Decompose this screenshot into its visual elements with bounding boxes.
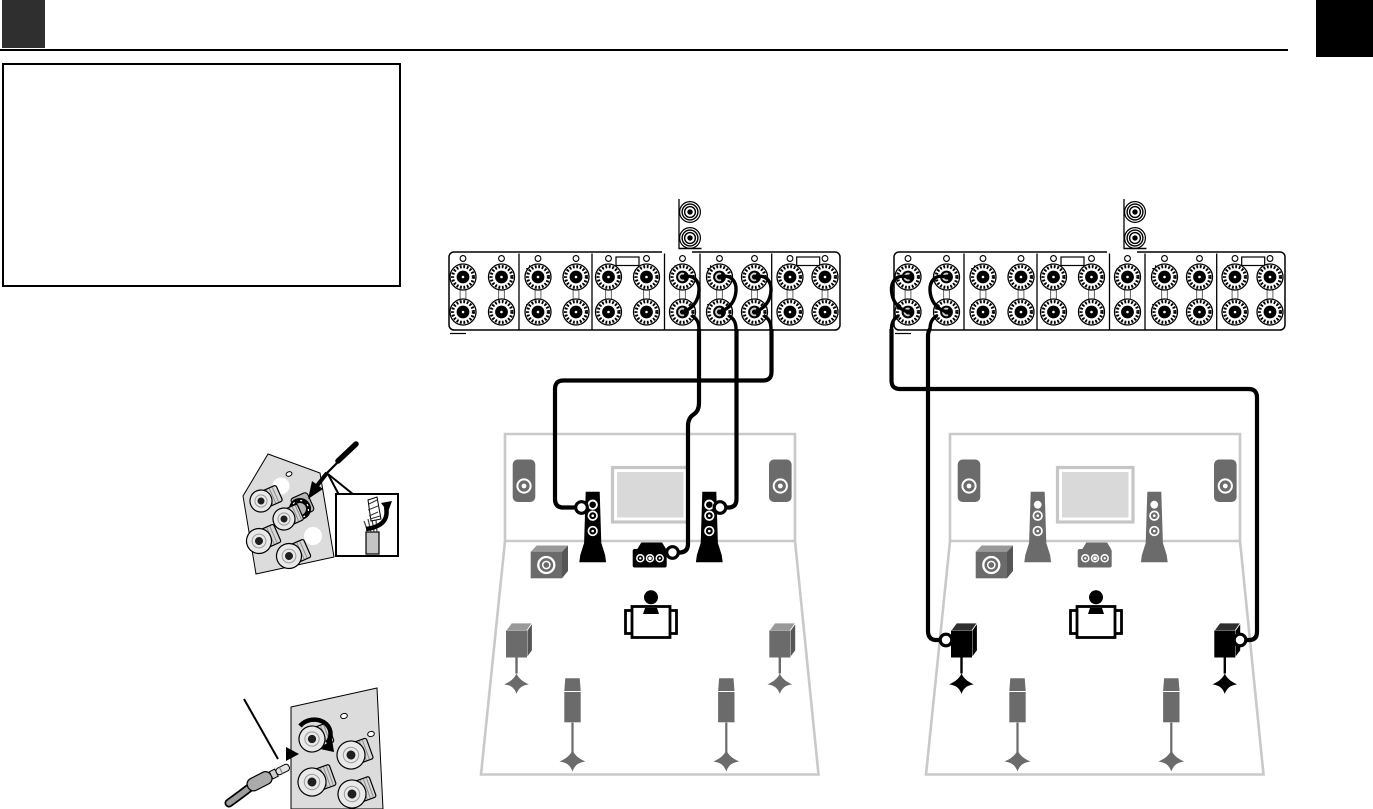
screw-hole-icon: [1197, 256, 1203, 262]
binding-post: [812, 264, 838, 290]
post-shaft: [606, 290, 612, 300]
screw-hole-icon: [499, 256, 505, 262]
screw-hole-icon: [1162, 256, 1168, 262]
post-shaft: [1232, 290, 1238, 300]
center-speaker: [633, 543, 667, 568]
binding-post: [634, 264, 660, 290]
binding-post: [596, 299, 622, 325]
speaker-terminal-panel-left: +−+−+−+−+−+−: [449, 199, 840, 334]
binding-post: [1152, 299, 1178, 325]
post-shaft: [1267, 290, 1273, 300]
binding-post: [1257, 299, 1283, 325]
binding-post: [1041, 264, 1067, 290]
plug-body: [245, 760, 292, 792]
center-speaker: [1078, 543, 1112, 568]
post-shaft: [1162, 290, 1168, 300]
listener-icon: [1071, 590, 1122, 637]
post-shaft: [1018, 290, 1024, 300]
binding-post: [970, 299, 996, 325]
subwoofer-icon: [531, 546, 568, 579]
screw-hole-icon: [752, 256, 758, 262]
binding-post: [1222, 299, 1248, 325]
speaker-connection-diagram-canvas: +−+−+−+−+−+−+−+−+−+−+−+−: [0, 0, 1373, 809]
speaker-wire-icon: [326, 444, 356, 474]
surround-back-speaker-left: [1005, 678, 1031, 771]
screw-hole-icon: [822, 256, 828, 262]
binding-post: [563, 264, 589, 290]
binding-post: [1152, 264, 1178, 290]
banana-plug-icon: [229, 699, 292, 803]
front-speaker-left: [1024, 492, 1051, 563]
binding-post: [1008, 264, 1034, 290]
listening-room-left: [481, 434, 819, 775]
binding-post: [1187, 299, 1213, 325]
tv-screen: [613, 468, 689, 523]
binding-post: [1115, 264, 1141, 290]
screw-hole-icon: [980, 256, 986, 262]
screw-hole-icon: [905, 256, 911, 262]
binding-post: [970, 264, 996, 290]
screw-hole-icon: [787, 256, 793, 262]
manual-page: +−+−+−+−+−+−+−+−+−+−+−+−: [0, 0, 1373, 809]
screw-hole-icon: [1051, 256, 1057, 262]
binding-post: [777, 299, 803, 325]
screw-hole-icon: [1125, 256, 1131, 262]
surround-back-speaker-right: [1158, 678, 1184, 771]
listener-icon: [626, 590, 677, 637]
binding-post: [525, 299, 551, 325]
callout-bubble: [328, 474, 398, 556]
post-shaft: [644, 290, 650, 300]
post-shaft: [944, 290, 950, 300]
tv-screen: [1058, 468, 1134, 523]
binding-post: [1115, 299, 1141, 325]
post-shaft: [1089, 290, 1095, 300]
post-shaft: [1051, 290, 1057, 300]
binding-post: [1008, 299, 1034, 325]
cable-hook: [940, 634, 952, 646]
presence-speaker-right: [769, 460, 792, 503]
subwoofer-icon: [976, 546, 1013, 579]
speaker-stand-base: [504, 673, 529, 693]
screw-hole-icon: [460, 256, 466, 262]
speaker-stand-base: [949, 673, 974, 693]
speaker-label-box: [616, 257, 639, 266]
post-shaft: [980, 290, 986, 300]
wire-connection-illustration: [242, 444, 398, 574]
speaker-label-box: [1242, 257, 1265, 266]
post-shaft: [573, 290, 579, 300]
binding-post: [1079, 299, 1105, 325]
binding-post: [777, 264, 803, 290]
presence-speaker-left: [513, 460, 536, 503]
rca-jack-icon: [680, 228, 701, 249]
post-shaft: [460, 290, 466, 300]
binding-post: [489, 264, 515, 290]
post-shaft: [1197, 290, 1203, 300]
cable-hook: [576, 502, 588, 514]
binding-post: [450, 264, 476, 290]
binding-post: [450, 299, 476, 325]
binding-post: [1041, 299, 1067, 325]
speaker-label-box: [797, 257, 820, 266]
screw-hole-icon: [680, 256, 686, 262]
speaker-cable: [928, 329, 940, 640]
post-shaft: [752, 290, 758, 300]
rca-jack-icon: [1125, 202, 1146, 223]
listening-room-right: [926, 434, 1264, 775]
screw-hole-icon: [606, 256, 612, 262]
post-shaft: [822, 290, 828, 300]
speaker-stand-base: [1212, 673, 1237, 693]
rca-jack-icon: [1125, 228, 1146, 249]
binding-post: [525, 264, 551, 290]
screw-hole-icon: [717, 256, 723, 262]
subwoofer-pre-out-jacks: [679, 199, 702, 249]
screw-hole-icon: [1267, 256, 1273, 262]
speaker-cable: [727, 329, 737, 508]
speaker-stand-base: [713, 750, 739, 772]
post-shaft: [1125, 290, 1131, 300]
screw-hole-icon: [1089, 256, 1095, 262]
banana-plug-illustration: [229, 688, 383, 809]
screw-hole-icon: [573, 256, 579, 262]
surround-speaker-left: [504, 623, 532, 694]
subwoofer-pre-out-jacks: [1124, 199, 1147, 249]
screw-hole-icon: [944, 256, 950, 262]
cable-hook: [714, 502, 726, 514]
screw-hole-icon: [535, 256, 541, 262]
binding-post: [812, 299, 838, 325]
post-shaft: [535, 290, 541, 300]
rca-jack-icon: [680, 202, 701, 223]
speaker-terminal-panel-right: +−+−+−+−+−+−: [891, 199, 1285, 334]
post-shaft: [905, 290, 911, 300]
presence-speaker-right: [1214, 460, 1237, 503]
wire-insulation: [366, 532, 379, 554]
speaker-stand-base: [560, 750, 586, 772]
surround-speaker-left: [949, 623, 977, 694]
binding-post: [1222, 264, 1248, 290]
binding-post: [1187, 264, 1213, 290]
screw-hole-icon: [1018, 256, 1024, 262]
front-speaker-right: [1141, 492, 1168, 563]
cable-hook: [1234, 634, 1246, 646]
post-shaft: [717, 290, 723, 300]
binding-post: [563, 299, 589, 325]
presence-speaker-left: [958, 460, 981, 503]
surround-back-speaker-right: [713, 678, 739, 771]
binding-post: [1079, 264, 1105, 290]
surround-speaker-right: [767, 623, 795, 694]
speaker-label-box: [1061, 257, 1084, 266]
surround-back-speaker-left: [560, 678, 586, 771]
binding-post: [634, 299, 660, 325]
speaker-stand-base: [1005, 750, 1031, 772]
screw-hole-icon: [1232, 256, 1238, 262]
binding-post: [596, 264, 622, 290]
binding-post: [1257, 264, 1283, 290]
screw-hole-icon: [644, 256, 650, 262]
post-shaft: [680, 290, 686, 300]
cable-hook: [667, 547, 679, 559]
post-shaft: [787, 290, 793, 300]
binding-post: [489, 299, 515, 325]
speaker-stand-base: [1158, 750, 1184, 772]
speaker-stand-base: [767, 673, 792, 693]
post-shaft: [499, 290, 505, 300]
